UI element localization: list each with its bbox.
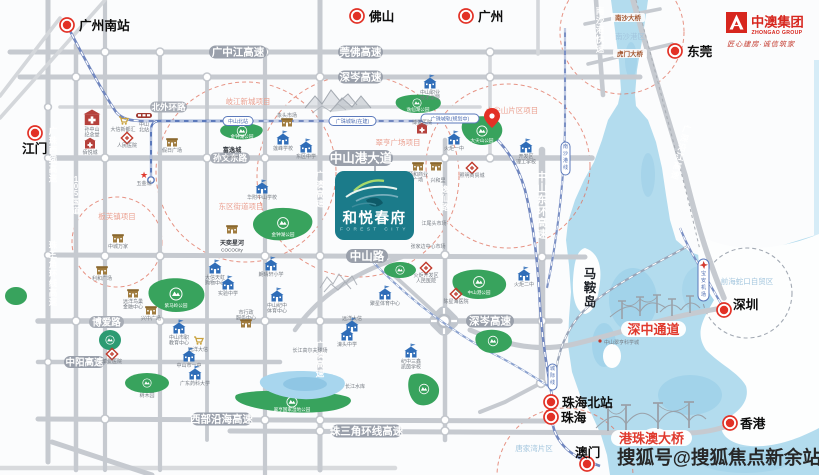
svg-text:大信天虹购物中心: 大信天虹购物中心 (205, 274, 225, 287)
svg-text:唐家湾片区: 唐家湾片区 (515, 443, 553, 453)
svg-text:莞佛高速: 莞佛高速 (339, 46, 382, 59)
svg-text:岐江新城项目: 岐江新城项目 (226, 96, 271, 106)
svg-text:金钟湖公园: 金钟湖公园 (231, 133, 254, 140)
svg-text:和悦春府: 和悦春府 (343, 209, 407, 227)
svg-text:马鞍岛: 马鞍岛 (584, 267, 597, 309)
svg-text:逸仙路: 逸仙路 (441, 184, 450, 212)
svg-text:广东药科大学: 广东药科大学 (180, 380, 210, 387)
svg-text:搜狐号@搜狐焦点新余站: 搜狐号@搜狐焦点新余站 (617, 447, 819, 468)
svg-text:陈星海医院: 陈星海医院 (443, 298, 468, 305)
svg-text:深岑高速: 深岑高速 (469, 315, 511, 328)
svg-text:翠亨广场项目: 翠亨广场项目 (376, 137, 421, 147)
svg-text:中城万家: 中城万家 (108, 243, 128, 250)
svg-text:江门: 江门 (22, 141, 47, 156)
svg-text:虎门大桥: 虎门大桥 (617, 49, 644, 58)
svg-text:东区街道项目: 东区街道项目 (219, 201, 264, 211)
svg-text:南沙大桥: 南沙大桥 (615, 13, 642, 22)
svg-text:★: ★ (140, 170, 148, 180)
svg-text:照明商贸城: 照明商贸城 (459, 172, 484, 179)
svg-text:远洋大信: 远洋大信 (342, 315, 362, 322)
svg-text:树木园: 树木园 (139, 392, 154, 399)
svg-text:东莞: 东莞 (687, 44, 713, 59)
svg-text:FOREST CITY: FOREST CITY (340, 227, 409, 232)
svg-text:张家边中心市场: 张家边中心市场 (410, 243, 445, 250)
svg-text:市行政服务中心: 市行政服务中心 (236, 309, 256, 322)
svg-text:纪中三鑫凯茵学校: 纪中三鑫凯茵学校 (401, 358, 421, 371)
svg-text:西部沿海高速: 西部沿海高速 (190, 413, 253, 426)
svg-text:前海蛇口自贸区: 前海蛇口自贸区 (721, 276, 774, 286)
svg-text:珠三角环线高速: 珠三角环线高速 (49, 240, 58, 307)
svg-text:南沙港快速: 南沙港快速 (596, 6, 605, 54)
svg-text:中山北站: 中山北站 (228, 118, 248, 125)
svg-text:广中江高速: 广中江高速 (212, 46, 265, 59)
svg-text:紫马岭公园: 紫马岭公园 (165, 302, 188, 309)
svg-text:翠亨国家湿地公园: 翠亨国家湿地公园 (274, 406, 311, 413)
svg-text:朗晴轩小学: 朗晴轩小学 (258, 271, 283, 278)
svg-text:火炬二中: 火炬二中 (514, 281, 534, 288)
svg-text:象头市场: 象头市场 (277, 112, 297, 119)
svg-text:中山纪中体育中心: 中山纪中体育中心 (267, 302, 287, 315)
svg-text:珠海: 珠海 (561, 410, 587, 425)
svg-text:港珠澳大桥: 港珠澳大桥 (619, 431, 685, 446)
svg-text:博爱医院: 博爱医院 (102, 358, 122, 365)
svg-text:聚星体育中心: 聚星体育中心 (370, 300, 400, 307)
svg-text:中山北站: 中山北站 (139, 121, 149, 134)
svg-text:中山翠亨科学城: 中山翠亨科学城 (604, 339, 639, 346)
svg-text:中山港公园: 中山港公园 (468, 289, 491, 296)
svg-text:长江高尔夫球场: 长江高尔夫球场 (292, 347, 327, 354)
svg-text:长江水库: 长江水库 (345, 383, 365, 390)
svg-text:大信新都汇: 大信新都汇 (110, 126, 135, 133)
svg-text:金钟湖公园: 金钟湖公园 (272, 231, 295, 238)
svg-text:开发区理工学校: 开发区理工学校 (516, 153, 536, 166)
svg-text:板芙镇项目: 板芙镇项目 (98, 211, 136, 221)
svg-text:五金城: 五金城 (136, 180, 151, 187)
svg-text:中山路: 中山路 (350, 249, 385, 263)
svg-text:南沙港区: 南沙港区 (615, 31, 645, 41)
svg-text:广珠城轨(在建): 广珠城轨(在建) (336, 118, 370, 125)
svg-text:兴和里: 兴和里 (430, 177, 445, 184)
svg-text:城际线: 城际线 (550, 365, 555, 386)
svg-text:深圳: 深圳 (733, 297, 758, 312)
svg-text:华附中山学校: 华附中山学校 (247, 194, 277, 201)
svg-text:实验中学: 实验中学 (218, 290, 238, 297)
svg-text:孙中山纪念堂: 孙中山纪念堂 (84, 126, 99, 139)
svg-text:北外环路: 北外环路 (151, 102, 186, 112)
svg-text:中山市一中: 中山市一中 (176, 362, 201, 369)
svg-text:中山东环高速: 中山东环高速 (537, 170, 548, 241)
svg-text:逸仙湖公园: 逸仙湖公园 (407, 106, 430, 113)
svg-text:佰悦城: 佰悦城 (82, 149, 97, 156)
svg-text:广州: 广州 (478, 9, 503, 24)
svg-text:匠心建房·诚信筑家: 匠心建房·诚信筑家 (727, 40, 795, 49)
svg-text:博爱路: 博爱路 (92, 317, 121, 329)
svg-text:火炬一中: 火炬一中 (444, 145, 464, 152)
svg-text:澳门: 澳门 (575, 445, 600, 460)
svg-text:利和广场: 利和广场 (92, 275, 112, 282)
svg-text:香港: 香港 (740, 416, 766, 431)
svg-text:TODER: TODER (225, 154, 239, 159)
svg-text:火炬开发区人民医院: 火炬开发区人民医院 (413, 272, 438, 285)
svg-text:远洋鸟巢金融中心: 远洋鸟巢金融中心 (123, 298, 143, 311)
svg-text:假日广场: 假日广场 (162, 147, 182, 154)
svg-text:中山市职教育中心: 中山市职教育中心 (169, 334, 189, 347)
svg-text:人民医院: 人民医院 (117, 142, 137, 149)
svg-text:中澳集团: 中澳集团 (751, 14, 804, 30)
svg-text:佛山: 佛山 (368, 9, 394, 24)
svg-text:深岑高速: 深岑高速 (340, 71, 382, 84)
svg-text:广州南站: 广州南站 (79, 18, 130, 33)
svg-text:江尾头市场: 江尾头市场 (421, 220, 446, 227)
svg-text:濠头中学: 濠头中学 (337, 341, 357, 348)
svg-text:富逸城: 富逸城 (223, 146, 242, 154)
svg-text:莲峰学校: 莲峰学校 (273, 145, 293, 152)
svg-text:大尖山公园: 大尖山公园 (471, 137, 494, 144)
svg-text:COCOCity: COCOCity (221, 248, 243, 253)
svg-text:深中通道: 深中通道 (627, 322, 679, 337)
svg-text:博爱医院: 博爱医院 (412, 119, 432, 126)
svg-text:ZHONGAO GROUP: ZHONGAO GROUP (752, 30, 803, 36)
svg-text:珠海北站: 珠海北站 (562, 395, 613, 410)
svg-text:中山职业技术学院: 中山职业技术学院 (420, 89, 440, 102)
svg-text:天奕星河: 天奕星河 (220, 239, 244, 247)
svg-text:珠三角环线高速: 珠三角环线高速 (330, 425, 404, 438)
svg-text:广珠城轨(规划中): 广珠城轨(规划中) (431, 116, 470, 123)
svg-text:广澳高速: 广澳高速 (316, 340, 325, 379)
svg-text:中阳高速: 中阳高速 (65, 357, 104, 369)
svg-text:中山港大道: 中山港大道 (330, 151, 393, 166)
svg-text:东区中学: 东区中学 (296, 153, 316, 160)
svg-text:兴中广场: 兴中广场 (141, 315, 161, 322)
svg-text:广珠西线高速: 广珠西线高速 (49, 126, 58, 184)
svg-text:广澳高速: 广澳高速 (316, 170, 325, 209)
